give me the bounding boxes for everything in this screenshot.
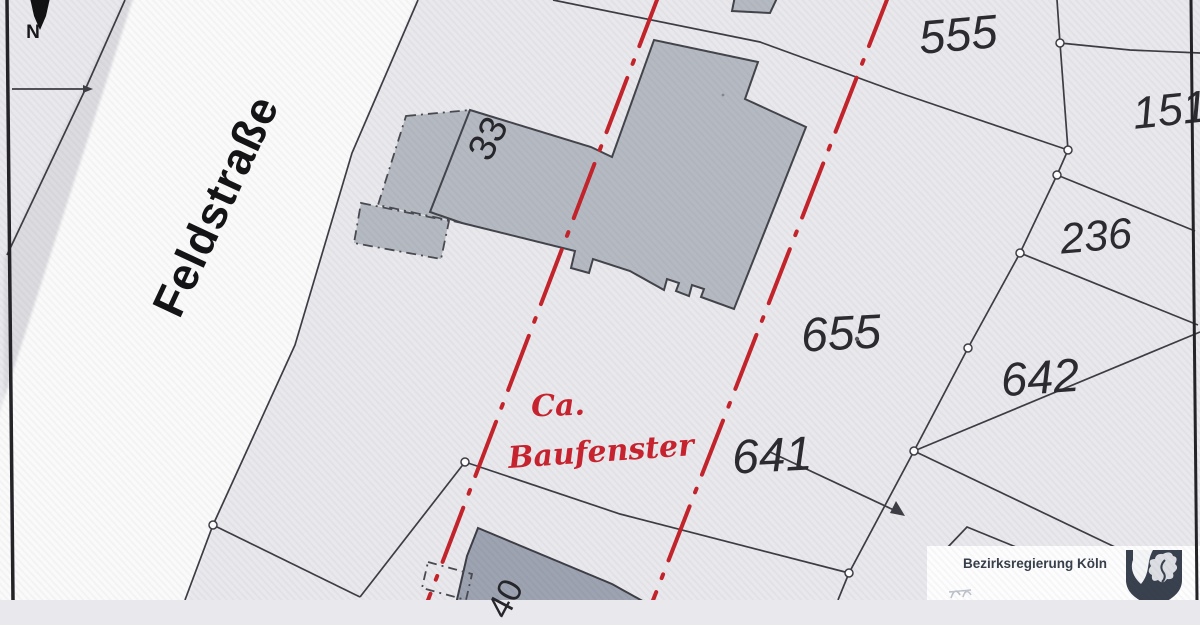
boundary-point [845, 569, 853, 577]
building-small-top [732, 0, 778, 13]
faint-pencil-marks [945, 580, 1005, 602]
cadastral-map-canvas [0, 0, 1200, 600]
boundary-point [964, 344, 972, 352]
scan-speckle [722, 94, 725, 97]
boundary-point [910, 447, 918, 455]
boundary-point [209, 521, 217, 529]
boundary-point [1053, 171, 1061, 179]
cadastral-map-screenshot: { "map": { "north_label": "N", "street":… [0, 0, 1200, 600]
boundary-point [461, 458, 469, 466]
map-stage: Feldstraße N 33 40 555 151 236 655 642 6… [0, 0, 1200, 600]
boundary-point [1056, 39, 1064, 47]
boundary-point [1064, 146, 1072, 154]
boundary-point [1016, 249, 1024, 257]
scan-speckle [855, 337, 859, 341]
